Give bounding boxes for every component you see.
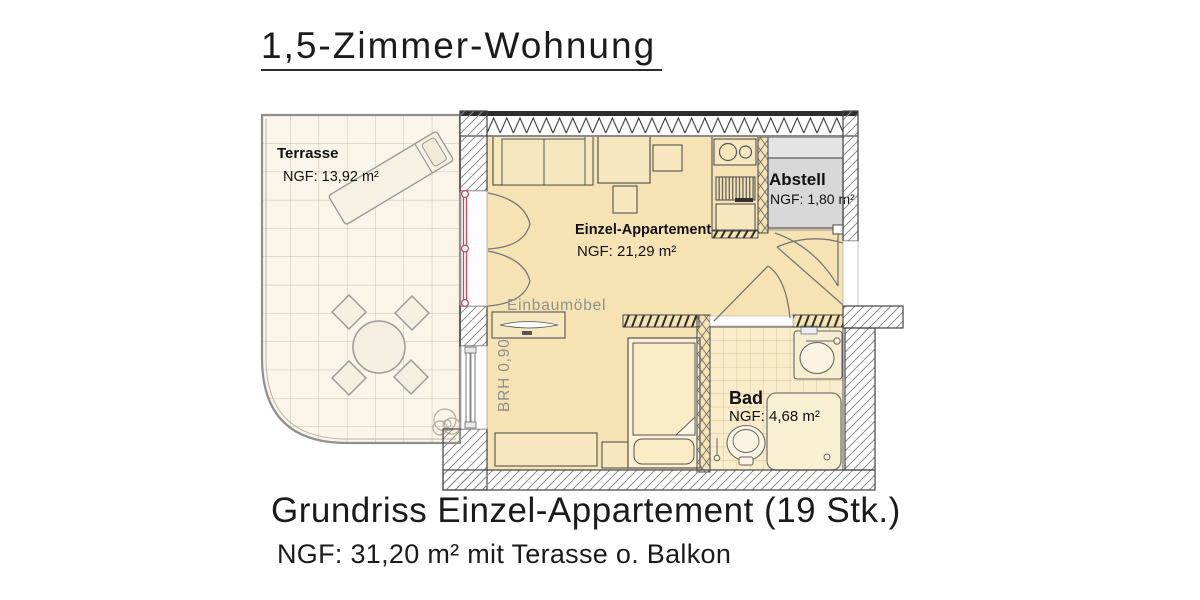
bed-mattress	[633, 343, 695, 435]
storage-room: Abstell NGF: 1,80 m²	[768, 137, 855, 234]
balcony-door	[461, 191, 487, 307]
wall-bed-bath	[697, 315, 710, 472]
bath-door-threshold	[710, 316, 793, 326]
wall-kitchen-storage	[758, 137, 768, 233]
chair-right	[653, 145, 682, 171]
kitchen-stove-handle	[735, 198, 753, 202]
bed-pillow	[634, 439, 694, 464]
terrace-label: Terrasse	[277, 145, 338, 162]
glazing-node	[462, 245, 469, 252]
wall-left-top	[460, 111, 487, 191]
built-in-furniture-label: Einbaumöbel	[507, 297, 606, 314]
washbasin	[794, 326, 842, 379]
nightstand	[602, 442, 628, 468]
sofa-armrest	[585, 133, 593, 185]
kitchenette	[712, 137, 758, 238]
tv-board	[492, 312, 565, 338]
kitchen-sink-unit	[714, 139, 756, 165]
wall-right-top	[843, 111, 858, 241]
storage-area-label: NGF: 1,80 m²	[770, 191, 855, 207]
sofa	[493, 130, 593, 185]
apartment-label: Einzel-Appartement	[575, 222, 711, 238]
wall-right-bath	[845, 328, 875, 470]
storage-door-hinge-block	[833, 225, 843, 234]
apartment-area-label: NGF: 21,29 m²	[577, 243, 676, 260]
bathroom: Bad NGF: 4,68 m²	[710, 326, 843, 470]
kitchen-stove	[716, 177, 755, 200]
dining-table	[598, 132, 650, 183]
wall-top-insulation	[487, 116, 843, 135]
wall-top-cap	[460, 111, 858, 116]
window-end-block	[465, 347, 476, 353]
kitchen-end-wall	[712, 230, 758, 238]
glazing-node	[462, 300, 469, 307]
wall-right-pier	[843, 306, 903, 328]
washbasin-tap	[834, 338, 840, 344]
window-end-block	[465, 422, 476, 428]
tv-stand	[522, 331, 532, 335]
storage-label: Abstell	[769, 170, 826, 189]
sill-height-label: BRH 0,90	[496, 338, 513, 412]
terrace-area-label: NGF: 13,92 m²	[283, 169, 379, 185]
kitchen-base-unit	[716, 204, 755, 231]
wall-sleeping-alcove	[623, 315, 699, 327]
plan-caption: Grundriss Einzel-Appartement (19 Stk.)	[271, 491, 901, 531]
wall-left-mid	[460, 306, 487, 346]
storage-upper-shelf	[768, 137, 843, 158]
wall-bottom	[443, 470, 875, 490]
sideboard	[495, 433, 597, 466]
terrace: Terrasse NGF: 13,92 m²	[262, 115, 460, 443]
page-title: 1,5-Zimmer-Wohnung	[261, 25, 662, 71]
window	[461, 346, 487, 429]
washbasin-bowl	[800, 343, 834, 374]
glazing-node	[462, 191, 469, 198]
entry-door-opening	[843, 241, 858, 306]
bath-area-label: NGF: 4,68 m²	[729, 408, 820, 425]
plan-subcaption: NGF: 31,20 m² mit Terasse o. Balkon	[277, 539, 731, 570]
wall-bath-top	[793, 315, 843, 327]
bed	[628, 338, 700, 468]
terrace-round-table	[353, 321, 405, 373]
floorplan-page: 1,5-Zimmer-Wohnung	[0, 0, 1200, 600]
toilet-bowl	[727, 426, 765, 461]
shower	[767, 393, 841, 470]
chair-bottom	[613, 186, 637, 213]
toilet-cistern	[739, 457, 753, 465]
bath-label: Bad	[729, 388, 763, 408]
